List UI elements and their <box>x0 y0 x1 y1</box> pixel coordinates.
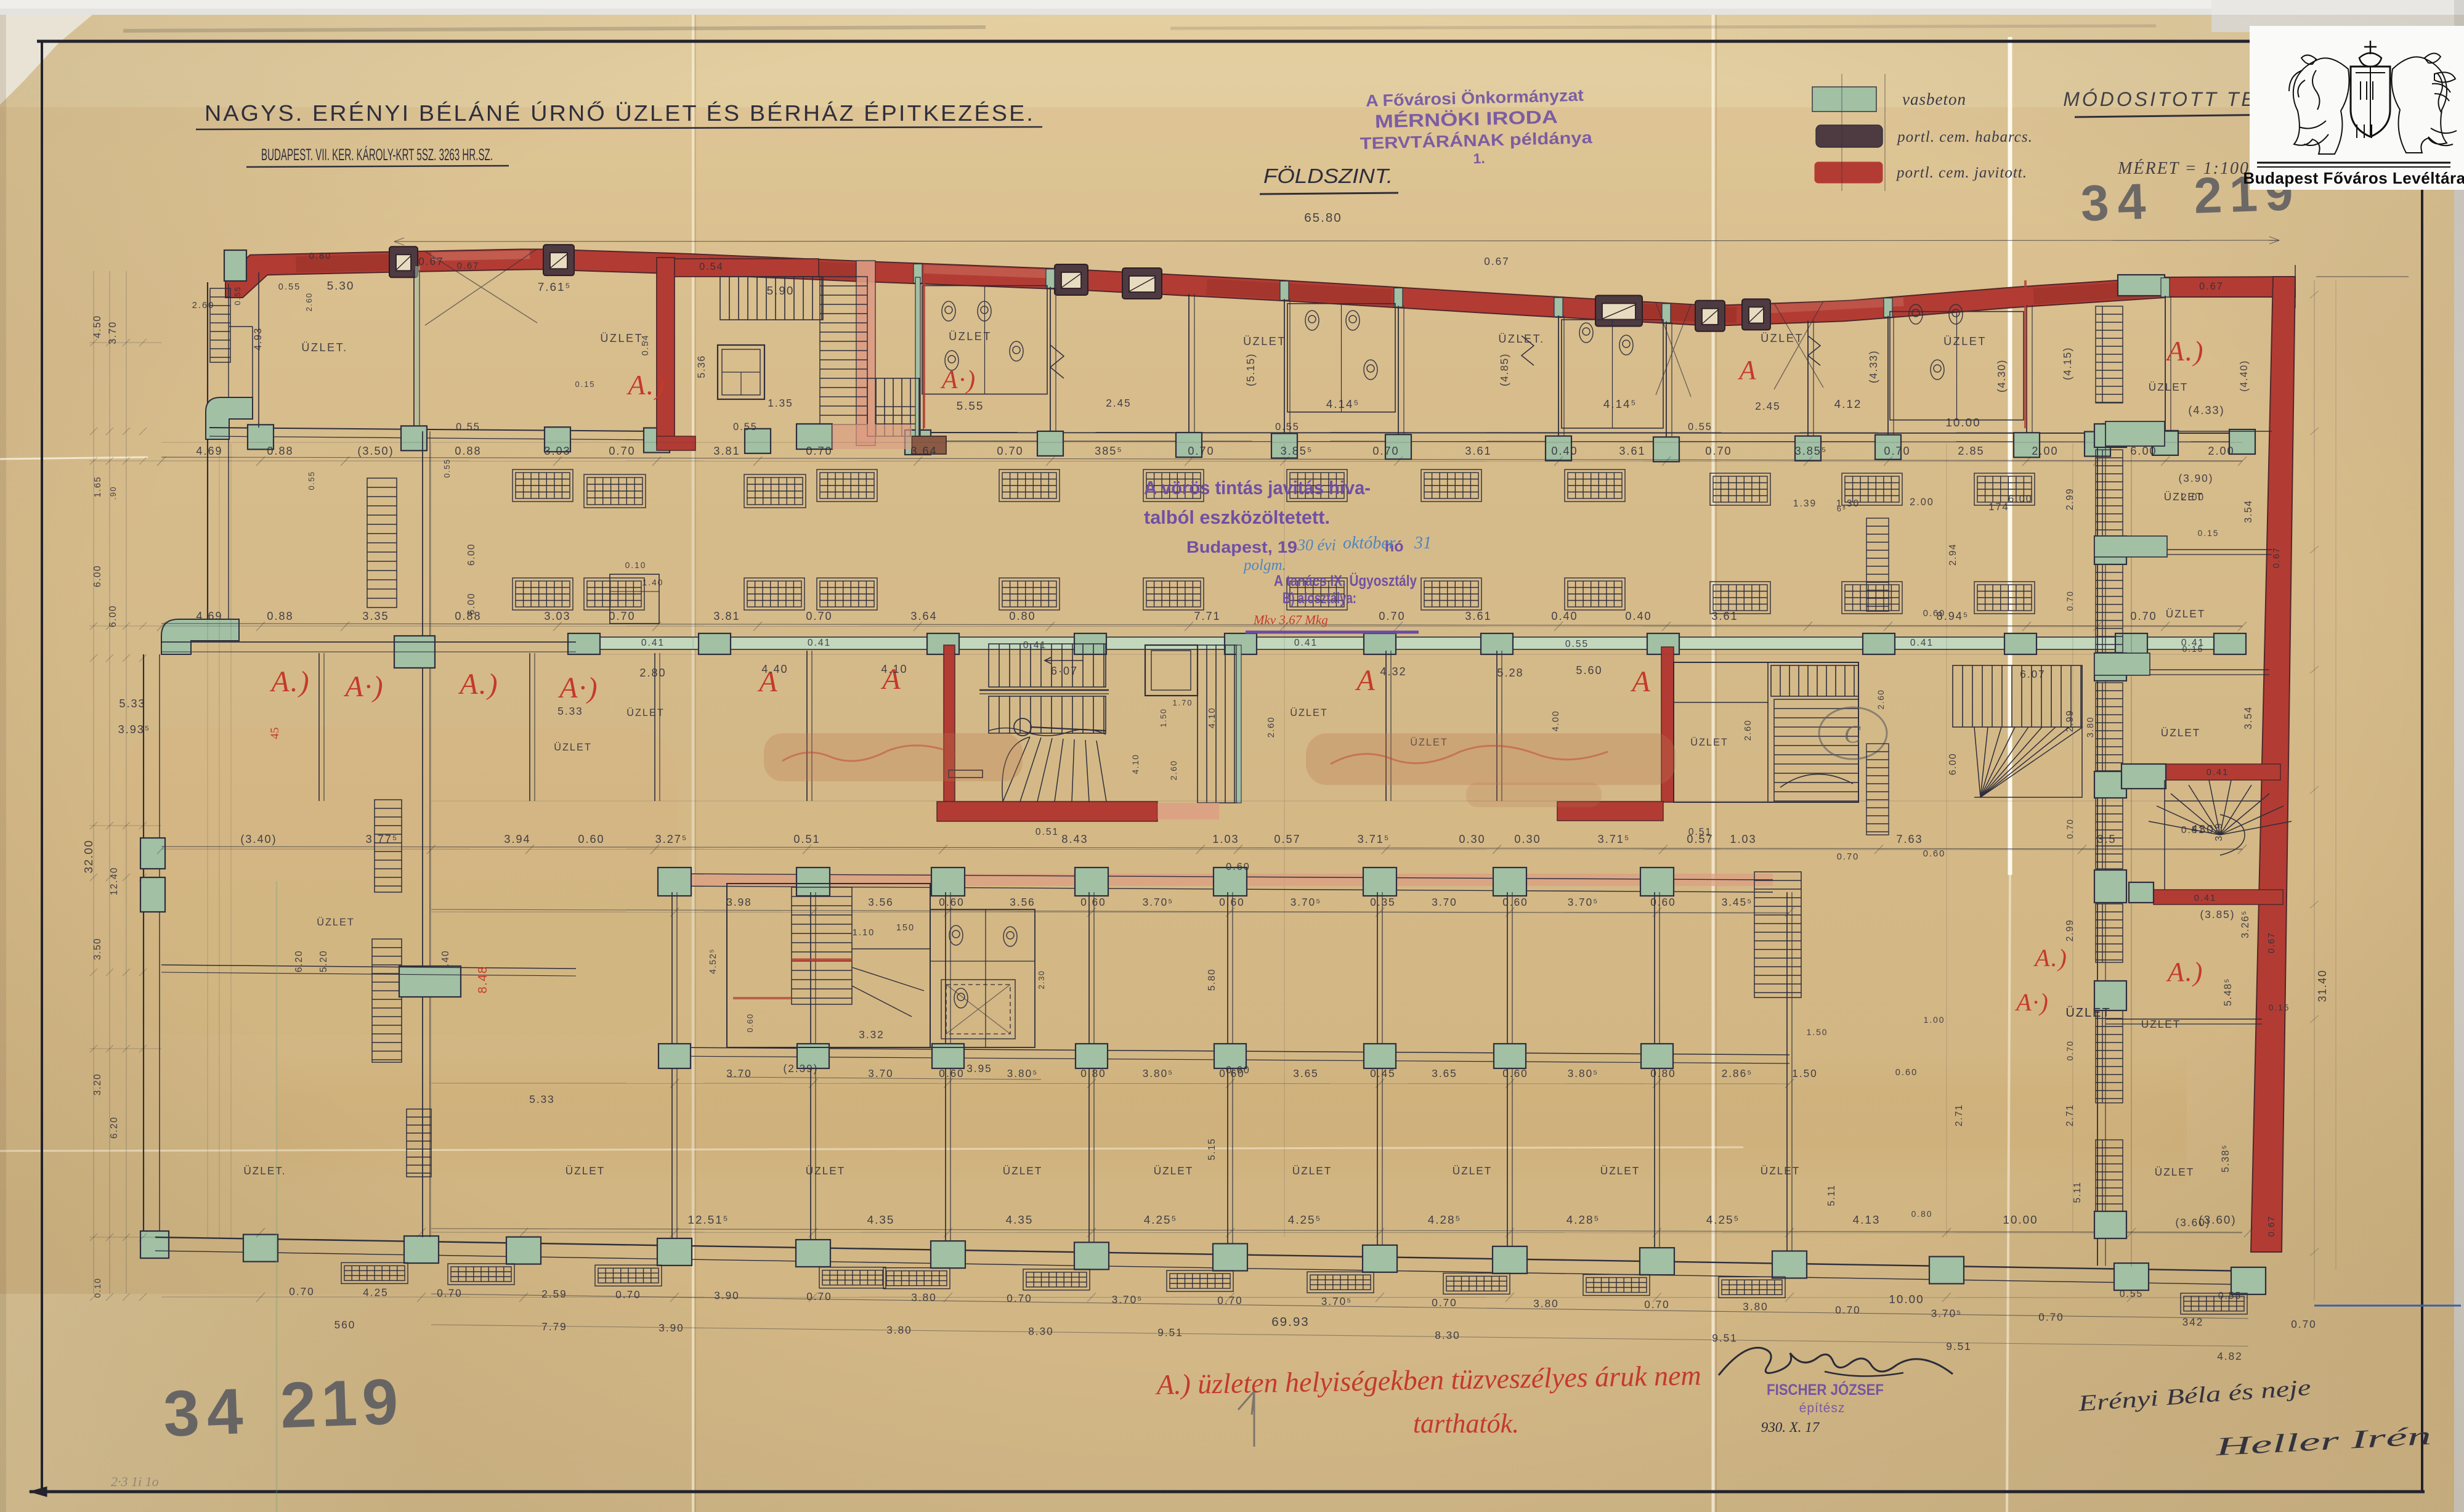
svg-text:430: 430 <box>2191 823 2215 836</box>
svg-text:A: A <box>1738 355 1757 385</box>
svg-text:6.07: 6.07 <box>2020 668 2045 680</box>
svg-text:4.10: 4.10 <box>1131 754 1140 774</box>
svg-text:2.45: 2.45 <box>1106 397 1131 409</box>
svg-text:0.60: 0.60 <box>1219 896 1244 908</box>
svg-text:1.70: 1.70 <box>1172 698 1193 707</box>
svg-text:3.61: 3.61 <box>1465 610 1491 622</box>
svg-text:0.30: 0.30 <box>1514 833 1541 845</box>
svg-text:10.00: 10.00 <box>1945 417 1980 429</box>
svg-text:5.11: 5.11 <box>2072 1181 2083 1203</box>
svg-text:0.15: 0.15 <box>2182 644 2204 654</box>
svg-text:ÜZLET: ÜZLET <box>565 1164 605 1177</box>
svg-text:ÜZLET.: ÜZLET. <box>1498 333 1544 345</box>
svg-text:0.55: 0.55 <box>442 458 452 478</box>
svg-text:építész: építész <box>1799 1401 1846 1415</box>
svg-text:2.00: 2.00 <box>1910 497 1934 508</box>
svg-text:0.70: 0.70 <box>1188 445 1214 457</box>
svg-text:3.80⁵: 3.80⁵ <box>1143 1067 1174 1079</box>
svg-text:(2.39): (2.39) <box>784 1062 819 1075</box>
svg-text:0.51: 0.51 <box>793 833 820 845</box>
svg-text:(4.40): (4.40) <box>2239 360 2250 392</box>
svg-text:7.61⁵: 7.61⁵ <box>538 281 572 294</box>
svg-text:6·07: 6·07 <box>1051 665 1078 677</box>
svg-text:3.5: 3.5 <box>2097 833 2116 845</box>
svg-text:0.70: 0.70 <box>1644 1298 1669 1311</box>
svg-text:3.81: 3.81 <box>713 445 740 457</box>
svg-text:560: 560 <box>334 1319 356 1331</box>
svg-text:2.00: 2.00 <box>2208 445 2234 457</box>
svg-text:0.60: 0.60 <box>1080 896 1106 908</box>
svg-text:0.60: 0.60 <box>939 896 964 908</box>
svg-text:0.55: 0.55 <box>233 286 242 305</box>
svg-text:4.40: 4.40 <box>761 663 788 675</box>
svg-text:5.33: 5.33 <box>119 697 145 710</box>
svg-text:3.80⁵: 3.80⁵ <box>1007 1067 1039 1079</box>
svg-text:0.51: 0.51 <box>1688 827 1712 837</box>
svg-text:0.15: 0.15 <box>2269 1003 2290 1012</box>
svg-text:8.30: 8.30 <box>1435 1329 1460 1341</box>
svg-text:0.88: 0.88 <box>455 445 481 457</box>
svg-text:2.30: 2.30 <box>1037 970 1046 989</box>
svg-text:0.80: 0.80 <box>1650 1067 1676 1079</box>
svg-text:FÖLDSZINT.: FÖLDSZINT. <box>1263 165 1393 187</box>
svg-text:30 évi: 30 évi <box>1297 536 1336 554</box>
svg-text:4.52⁵: 4.52⁵ <box>708 948 718 974</box>
svg-text:1.39: 1.39 <box>1793 498 1817 509</box>
svg-text:ÜZLET: ÜZLET <box>317 917 355 928</box>
svg-text:0.70: 0.70 <box>1705 445 1732 457</box>
svg-text:portl. cem. javitott.: portl. cem. javitott. <box>1895 165 2027 181</box>
svg-text:0.70: 0.70 <box>1007 1292 1032 1304</box>
svg-text:0.51: 0.51 <box>1035 827 1059 837</box>
svg-text:A tanács IX. Ügyosztály: A tanács IX. Ügyosztály <box>1274 572 1417 590</box>
svg-text:0.60: 0.60 <box>1923 609 1945 619</box>
svg-text:3.26⁵: 3.26⁵ <box>2240 910 2251 938</box>
svg-text:A: A <box>1630 665 1651 698</box>
svg-text:3.70: 3.70 <box>726 1067 752 1079</box>
svg-text:0.70: 0.70 <box>1372 445 1399 457</box>
svg-text:5.90: 5.90 <box>767 285 795 298</box>
svg-text:ÜZLET: ÜZLET <box>2149 381 2188 393</box>
svg-text:7.71: 7.71 <box>1194 610 1220 622</box>
svg-text:0.45: 0.45 <box>1370 1067 1395 1079</box>
svg-text:A vörös tintás javitás hiva-: A vörös tintás javitás hiva- <box>1144 477 1371 498</box>
svg-text:5.48⁵: 5.48⁵ <box>2223 978 2234 1006</box>
svg-text:3.85⁵: 3.85⁵ <box>1795 445 1828 457</box>
svg-text:34: 34 <box>162 1375 251 1450</box>
svg-text:3.70⁵: 3.70⁵ <box>1568 896 1599 908</box>
svg-text:2.00: 2.00 <box>2181 492 2205 503</box>
svg-text:Mkv 3.67 Mkg: Mkv 3.67 Mkg <box>1253 612 1328 627</box>
svg-text:4.14⁵: 4.14⁵ <box>1326 398 1360 411</box>
svg-text:2.99: 2.99 <box>2065 710 2075 732</box>
svg-text:C: C <box>1844 720 1862 748</box>
svg-text:31: 31 <box>1414 534 1432 553</box>
svg-text:6.00: 6.00 <box>466 593 477 615</box>
svg-text:3.80⁵: 3.80⁵ <box>1568 1067 1599 1079</box>
svg-text:0.70: 0.70 <box>2065 1041 2075 1061</box>
svg-text:2.60: 2.60 <box>1743 720 1753 741</box>
svg-text:0.55: 0.55 <box>1688 421 1712 433</box>
svg-text:174: 174 <box>1988 502 2009 513</box>
svg-text:polgm.: polgm. <box>1242 557 1286 574</box>
svg-text:A·): A·) <box>2014 988 2049 1016</box>
svg-text:6.20: 6.20 <box>109 1116 120 1139</box>
svg-text:3.64: 3.64 <box>910 610 937 622</box>
svg-text:vasbeton: vasbeton <box>1902 90 1966 108</box>
svg-text:(3.60): (3.60) <box>2176 1216 2211 1229</box>
svg-text:0.70: 0.70 <box>2065 819 2075 839</box>
svg-text:0.60: 0.60 <box>1226 861 1250 872</box>
svg-text:1.50: 1.50 <box>1159 708 1168 727</box>
svg-text:3.70⁵: 3.70⁵ <box>1143 896 1174 908</box>
svg-text:talból eszközöltetett.: talból eszközöltetett. <box>1144 506 1330 528</box>
svg-text:0.67: 0.67 <box>1484 255 1509 267</box>
svg-text:0.60: 0.60 <box>745 1013 755 1032</box>
svg-text:0.40: 0.40 <box>1551 445 1578 457</box>
svg-text:930. X. 17: 930. X. 17 <box>1761 1420 1820 1435</box>
svg-text:(4.85): (4.85) <box>1498 353 1510 386</box>
svg-text:0.70: 0.70 <box>1835 1304 1860 1316</box>
svg-text:ÜZLET: ÜZLET <box>626 707 665 718</box>
svg-text:6.00: 6.00 <box>1948 753 1958 775</box>
svg-text:0.70: 0.70 <box>609 445 635 457</box>
svg-text:0.55: 0.55 <box>307 471 316 490</box>
svg-text:1.35: 1.35 <box>768 397 793 409</box>
svg-text:2.80: 2.80 <box>639 667 666 679</box>
svg-text:0.88: 0.88 <box>267 610 293 622</box>
svg-text:0.54: 0.54 <box>699 261 724 272</box>
svg-text:3.65: 3.65 <box>1293 1067 1318 1079</box>
svg-text:3.70: 3.70 <box>107 321 118 344</box>
svg-text:2.71: 2.71 <box>1954 1104 1964 1126</box>
svg-text:2.71: 2.71 <box>2065 1104 2075 1126</box>
svg-text:4.69: 4.69 <box>196 445 222 457</box>
svg-text:3.94: 3.94 <box>504 833 530 845</box>
svg-text:3.80: 3.80 <box>2086 717 2096 738</box>
svg-text:A·): A·) <box>940 366 976 394</box>
svg-text:4.25⁵: 4.25⁵ <box>1144 1214 1178 1227</box>
svg-text:(4.33): (4.33) <box>1867 350 1879 383</box>
svg-text:3.70: 3.70 <box>1432 896 1457 908</box>
svg-text:12.51⁵: 12.51⁵ <box>687 1214 729 1227</box>
svg-text:0.57: 0.57 <box>1274 833 1300 845</box>
svg-text:A·): A·) <box>557 672 598 704</box>
svg-text:Budapest Főváros Levéltára: Budapest Főváros Levéltára <box>2243 169 2464 187</box>
svg-text:(3.40): (3.40) <box>240 833 277 845</box>
svg-text:0.80: 0.80 <box>1911 1209 1933 1219</box>
svg-text:3.61: 3.61 <box>1619 445 1645 457</box>
svg-text:3.80: 3.80 <box>1533 1297 1558 1309</box>
svg-text:4.25⁵: 4.25⁵ <box>1706 1214 1740 1227</box>
svg-text:2.00: 2.00 <box>2032 445 2058 457</box>
svg-text:2.99: 2.99 <box>2065 919 2075 941</box>
svg-text:0.67: 0.67 <box>457 261 479 271</box>
svg-text:1.50: 1.50 <box>1792 1067 1817 1079</box>
svg-text:4.10: 4.10 <box>881 663 907 675</box>
svg-text:(4.15): (4.15) <box>2061 347 2073 380</box>
svg-text:3.61: 3.61 <box>1465 445 1491 457</box>
svg-text:0.60: 0.60 <box>1219 1067 1244 1079</box>
svg-text:2·3 1i 1o: 2·3 1i 1o <box>111 1474 159 1489</box>
svg-text:október: október <box>1343 534 1396 553</box>
svg-text:5.55: 5.55 <box>957 400 984 413</box>
svg-text:8.30: 8.30 <box>1028 1325 1053 1338</box>
svg-text:3.03: 3.03 <box>544 610 570 622</box>
svg-text:4.32: 4.32 <box>1380 665 1406 678</box>
svg-text:2.59: 2.59 <box>541 1288 567 1300</box>
svg-text:3.81: 3.81 <box>713 610 740 622</box>
svg-text:3.32: 3.32 <box>859 1028 884 1041</box>
svg-text:(4.33): (4.33) <box>2188 404 2224 417</box>
svg-text:3.35: 3.35 <box>362 610 389 622</box>
svg-text:ÜZLET: ÜZLET <box>1690 737 1728 748</box>
svg-text:MÓDOSITOTT TER: MÓDOSITOTT TER <box>2063 88 2274 110</box>
svg-text:5.60: 5.60 <box>1576 664 1602 677</box>
svg-text:2.99: 2.99 <box>2065 488 2075 510</box>
svg-text:5.33: 5.33 <box>529 1093 554 1105</box>
svg-text:1.10: 1.10 <box>853 928 875 938</box>
svg-text:4.82: 4.82 <box>2217 1350 2242 1362</box>
svg-text:3.70⁵: 3.70⁵ <box>1931 1307 1963 1319</box>
svg-text:2.60: 2.60 <box>1169 760 1178 781</box>
svg-text:150: 150 <box>896 923 915 933</box>
svg-text:1.: 1. <box>1473 150 1485 166</box>
svg-text:(5.15): (5.15) <box>1244 353 1257 386</box>
svg-text:ÜZLET: ÜZLET <box>1292 1164 1332 1177</box>
svg-text:0.55: 0.55 <box>1565 639 1589 649</box>
svg-text:3.93⁵: 3.93⁵ <box>118 723 151 736</box>
svg-text:6.00: 6.00 <box>2008 494 2033 505</box>
svg-text:ÜZLET: ÜZLET <box>2141 1018 2181 1030</box>
svg-text:0.60: 0.60 <box>1502 1067 1528 1079</box>
svg-text:5.80: 5.80 <box>1207 969 1217 991</box>
svg-text:ÜZLET: ÜZLET <box>806 1164 845 1177</box>
svg-text:5.11: 5.11 <box>1826 1184 1837 1206</box>
svg-text:2.85: 2.85 <box>1958 445 1984 457</box>
svg-text:0.41: 0.41 <box>1023 640 1047 651</box>
svg-text:0.70: 0.70 <box>615 1288 641 1301</box>
svg-text:10.00: 10.00 <box>1889 1293 1924 1306</box>
svg-text:2.45: 2.45 <box>1755 400 1780 412</box>
svg-text:3.98: 3.98 <box>726 896 752 908</box>
svg-text:0.70: 0.70 <box>806 445 832 457</box>
svg-text:A.): A.) <box>626 369 666 400</box>
svg-text:9.51: 9.51 <box>1157 1327 1183 1339</box>
svg-text:1.00: 1.00 <box>1924 1015 1945 1025</box>
svg-text:0.55: 0.55 <box>733 421 758 433</box>
svg-text:0.55: 0.55 <box>456 421 480 433</box>
svg-text:A.): A.) <box>269 665 310 698</box>
svg-text:ÜZLET.: ÜZLET. <box>600 332 646 344</box>
svg-text:5.30: 5.30 <box>327 280 355 293</box>
svg-text:ÜZLET: ÜZLET <box>1154 1164 1193 1177</box>
svg-text:ÜZLET: ÜZLET <box>2155 1166 2194 1178</box>
svg-text:0.70: 0.70 <box>2130 610 2157 622</box>
svg-text:3.80: 3.80 <box>1743 1300 1768 1312</box>
svg-text:0.70: 0.70 <box>289 1285 314 1298</box>
svg-text:ÜZLET.: ÜZLET. <box>301 341 347 354</box>
svg-text:(3.90): (3.90) <box>2179 472 2214 484</box>
svg-text:0.60: 0.60 <box>1895 1068 1918 1078</box>
svg-text:3.71⁵: 3.71⁵ <box>1358 833 1390 845</box>
svg-text:A: A <box>1355 664 1376 697</box>
svg-text:4.69: 4.69 <box>196 610 222 622</box>
svg-text:3.85⁵: 3.85⁵ <box>1281 445 1313 457</box>
svg-text:8.43: 8.43 <box>1061 833 1088 845</box>
svg-text:0.60: 0.60 <box>1923 849 1945 859</box>
svg-text:3.45⁵: 3.45⁵ <box>1722 896 1753 908</box>
svg-text:0.70: 0.70 <box>1837 852 1859 862</box>
svg-text:0.60: 0.60 <box>578 833 604 845</box>
svg-text:(4.30): (4.30) <box>1995 359 2008 392</box>
svg-text:5.28: 5.28 <box>1497 667 1523 679</box>
svg-text:4.12: 4.12 <box>1834 398 1862 411</box>
svg-text:0.70: 0.70 <box>2291 1318 2316 1330</box>
svg-text:2.86⁵: 2.86⁵ <box>1722 1067 1753 1079</box>
svg-text:2.60: 2.60 <box>1876 689 1886 710</box>
svg-text:0.55: 0.55 <box>1275 421 1300 433</box>
svg-text:34: 34 <box>2080 173 2155 232</box>
svg-text:0.70: 0.70 <box>1379 610 1405 622</box>
svg-text:3.70: 3.70 <box>868 1067 893 1079</box>
svg-text:5.33: 5.33 <box>557 705 583 717</box>
svg-text:5.20: 5.20 <box>318 950 329 972</box>
svg-text:3.20: 3.20 <box>92 1073 103 1095</box>
svg-text:0.60: 0.60 <box>1502 896 1528 908</box>
svg-text:A.): A.) <box>2165 335 2205 367</box>
svg-text:A·): A·) <box>343 670 384 703</box>
svg-text:6.00: 6.00 <box>2130 445 2157 457</box>
svg-text:0.70: 0.70 <box>997 445 1023 457</box>
svg-text:7.63: 7.63 <box>1896 833 1923 845</box>
svg-text:ÜZLET: ÜZLET <box>1761 1164 1800 1177</box>
svg-text:0.60: 0.60 <box>939 1067 964 1079</box>
svg-text:0.67: 0.67 <box>2272 547 2282 568</box>
svg-text:A.): A.) <box>2166 957 2204 987</box>
svg-text:1.50: 1.50 <box>1807 1028 1828 1037</box>
svg-text:4.25: 4.25 <box>363 1286 388 1298</box>
svg-text:portl. cem. habarcs.: portl. cem. habarcs. <box>1896 129 2033 145</box>
svg-text:ÜZLET: ÜZLET <box>554 742 592 753</box>
svg-text:(3.50): (3.50) <box>357 445 394 457</box>
svg-text:3.95: 3.95 <box>967 1062 992 1075</box>
svg-text:3.65: 3.65 <box>1432 1067 1457 1079</box>
svg-text:6.00: 6.00 <box>466 543 477 566</box>
svg-text:0.15: 0.15 <box>575 380 595 389</box>
svg-text:0.70: 0.70 <box>1432 1296 1457 1309</box>
svg-text:2.60: 2.60 <box>1266 717 1276 738</box>
svg-text:329: 329 <box>2214 823 2224 841</box>
svg-text:4.00: 4.00 <box>1551 710 1561 731</box>
svg-text:A.): A.) <box>458 668 498 701</box>
svg-text:ÜZLET: ÜZLET <box>1600 1164 1640 1177</box>
svg-text:0.70: 0.70 <box>2065 591 2075 611</box>
svg-text:ÜZLET: ÜZLET <box>1290 707 1328 718</box>
svg-text:4.28⁵: 4.28⁵ <box>1566 1214 1600 1227</box>
svg-text:0.35: 0.35 <box>1370 896 1395 908</box>
svg-text:3.54: 3.54 <box>2243 500 2254 523</box>
svg-text:0.30: 0.30 <box>1459 833 1485 845</box>
svg-text:ÜZLET: ÜZLET <box>1943 335 1987 348</box>
svg-text:3.27⁵: 3.27⁵ <box>655 833 688 845</box>
svg-text:31.40: 31.40 <box>2316 970 2328 1002</box>
svg-text:10.00: 10.00 <box>2003 1214 2038 1227</box>
svg-text:0.15: 0.15 <box>2198 529 2219 538</box>
svg-text:0.80: 0.80 <box>1009 610 1035 622</box>
svg-text:0.80: 0.80 <box>309 251 331 261</box>
svg-text:1.65: 1.65 <box>93 476 103 497</box>
svg-text:0.55: 0.55 <box>2218 1291 2242 1301</box>
svg-text:3.56: 3.56 <box>868 896 893 908</box>
svg-text:4.35: 4.35 <box>867 1214 895 1227</box>
svg-text:2.60: 2.60 <box>304 292 314 311</box>
svg-text:0.41: 0.41 <box>808 638 831 648</box>
svg-text:4.93: 4.93 <box>253 327 264 351</box>
svg-text:0.70: 0.70 <box>2038 1311 2064 1323</box>
svg-text:ÜZLET: ÜZLET <box>2166 608 2205 620</box>
svg-text:3.03: 3.03 <box>544 445 570 457</box>
svg-text:ÜZLET: ÜZLET <box>1761 332 1804 344</box>
svg-text:4.14⁵: 4.14⁵ <box>1603 398 1637 411</box>
svg-text:0.41: 0.41 <box>2194 893 2216 903</box>
svg-text:5.15: 5.15 <box>1207 1138 1217 1160</box>
svg-text:4.25⁵: 4.25⁵ <box>1288 1214 1322 1227</box>
svg-text:32.00: 32.00 <box>83 840 95 874</box>
svg-text:3.56: 3.56 <box>1010 896 1035 908</box>
svg-text:ÜZLET: ÜZLET <box>1243 335 1286 348</box>
svg-text:1.30: 1.30 <box>1836 498 1860 509</box>
svg-text:FISCHER JÓZSEF: FISCHER JÓZSEF <box>1767 1380 1884 1399</box>
svg-text:Budapest, 19: Budapest, 19 <box>1186 538 1297 556</box>
svg-text:NAGYS. ERÉNYI BÉLÁNÉ ÚRNŐ ÜZLE: NAGYS. ERÉNYI BÉLÁNÉ ÚRNŐ ÜZLET ÉS BÉRHÁ… <box>205 100 1035 126</box>
svg-text:2.60: 2.60 <box>192 301 214 311</box>
svg-text:1.03: 1.03 <box>1730 833 1756 845</box>
svg-text:9.51: 9.51 <box>1946 1340 1971 1352</box>
svg-text:0.41: 0.41 <box>641 638 665 648</box>
svg-text:65.80: 65.80 <box>1304 211 1342 225</box>
svg-text:BUDAPEST. VII. KER. KÁROLY-KRT: BUDAPEST. VII. KER. KÁROLY-KRT 5SZ. 3263… <box>261 145 493 164</box>
svg-text:6.00: 6.00 <box>108 605 118 627</box>
svg-text:3.70⁵: 3.70⁵ <box>1291 896 1322 908</box>
svg-text:ÜZLET.: ÜZLET. <box>243 1164 286 1177</box>
svg-text:3.50: 3.50 <box>92 938 103 960</box>
svg-text:8.48: 8.48 <box>476 966 490 994</box>
svg-text:(3.85): (3.85) <box>2200 908 2235 921</box>
svg-text:0.55: 0.55 <box>2120 1289 2143 1299</box>
svg-text:3.61: 3.61 <box>1711 610 1738 622</box>
svg-text:0.40: 0.40 <box>1551 610 1578 622</box>
svg-text:2.94: 2.94 <box>1948 543 1958 566</box>
svg-text:0.70: 0.70 <box>609 610 635 622</box>
svg-text:5.36: 5.36 <box>696 355 707 378</box>
svg-text:0.70: 0.70 <box>806 610 832 622</box>
svg-text:0.40: 0.40 <box>1625 610 1651 622</box>
svg-text:3.90: 3.90 <box>714 1290 739 1302</box>
svg-text:.90: .90 <box>108 486 118 500</box>
svg-text:1.40: 1.40 <box>642 578 664 587</box>
svg-text:0.70: 0.70 <box>1884 445 1910 457</box>
svg-text:A.): A.) <box>2033 944 2068 972</box>
svg-text:0.67: 0.67 <box>2199 281 2224 292</box>
svg-text:69.93: 69.93 <box>1271 1315 1310 1329</box>
svg-text:219: 219 <box>279 1365 404 1442</box>
svg-text:5.38⁵: 5.38⁵ <box>2220 1144 2231 1173</box>
svg-text:4.13: 4.13 <box>1853 1214 1881 1227</box>
svg-text:0.80: 0.80 <box>1080 1067 1106 1079</box>
svg-text:0.88: 0.88 <box>267 445 293 457</box>
svg-text:tarthatók.: tarthatók. <box>1413 1408 1519 1439</box>
